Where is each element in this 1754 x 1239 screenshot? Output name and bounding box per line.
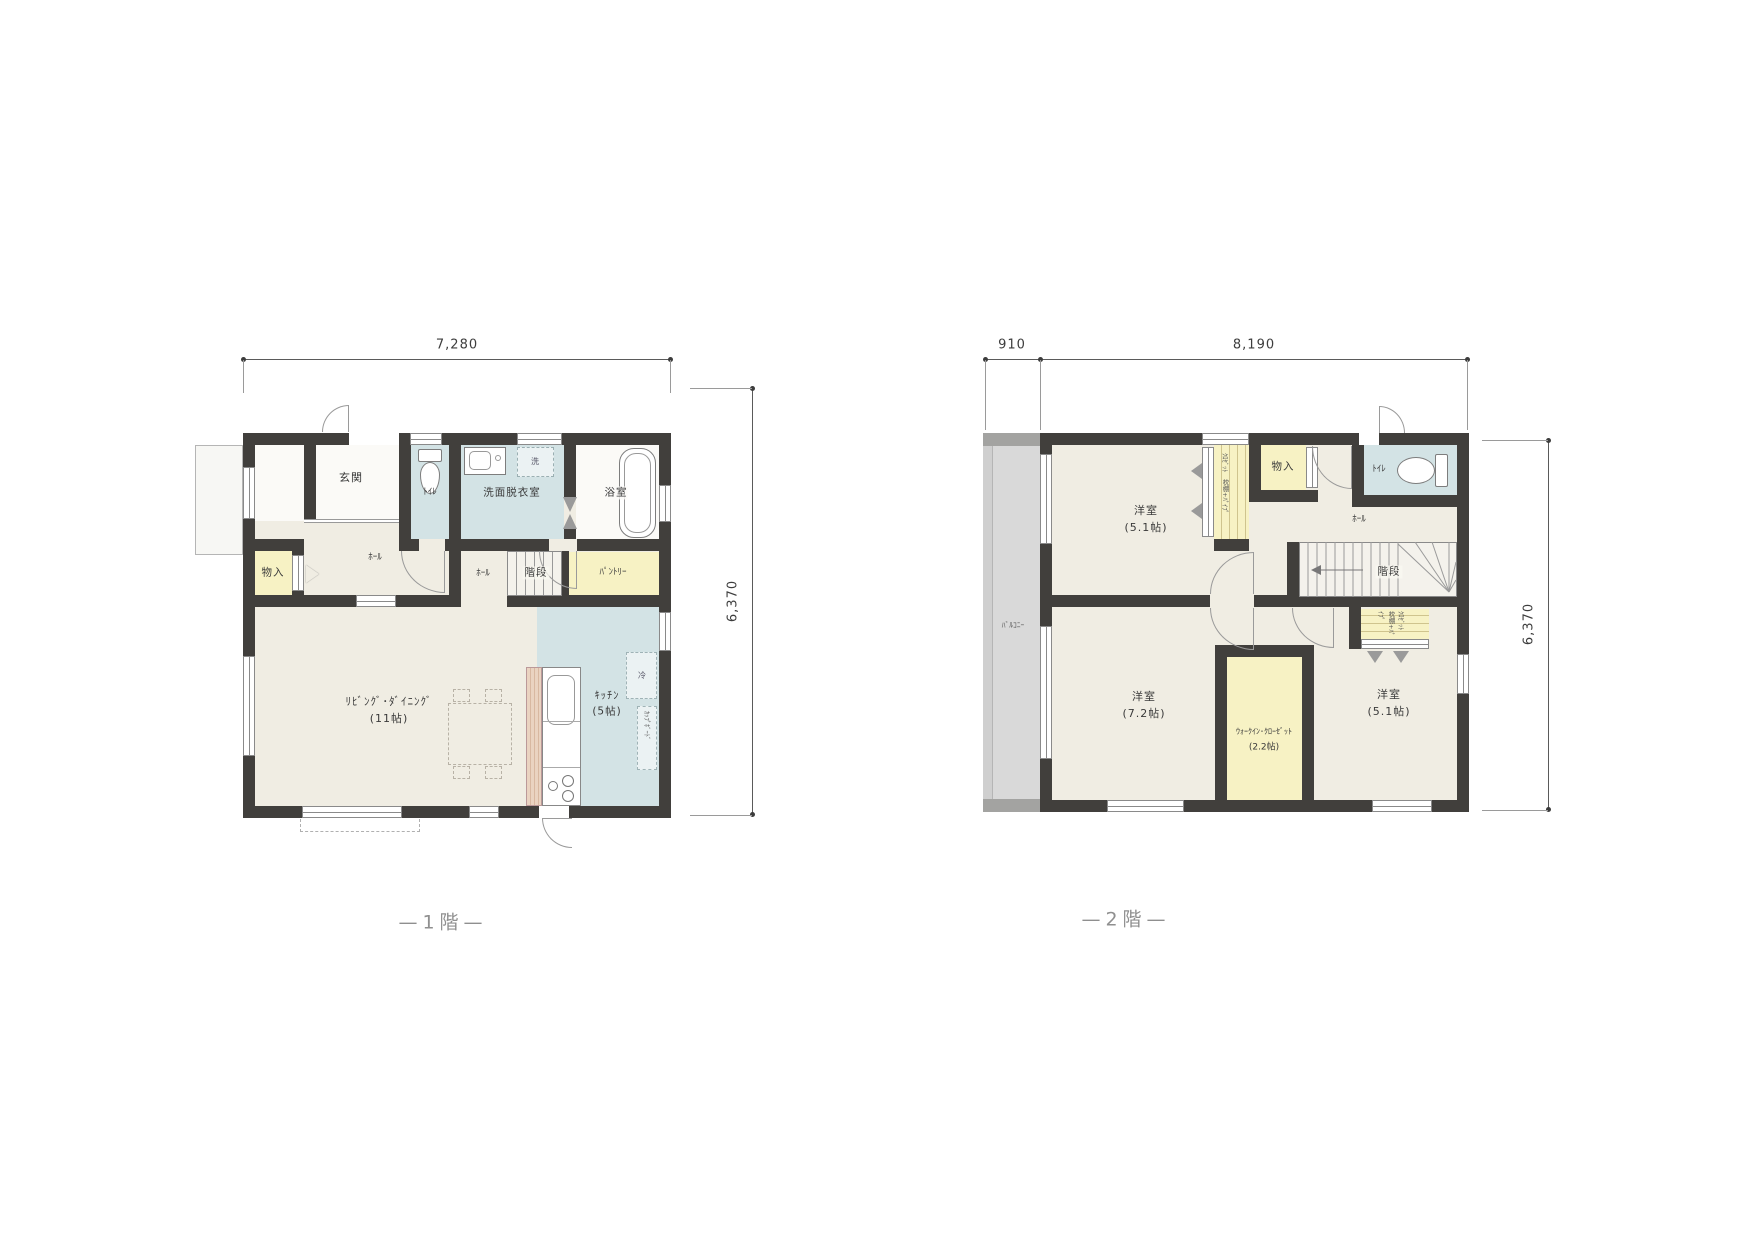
wall (564, 529, 576, 539)
toilet-tank-icon (1435, 454, 1448, 487)
folding-door-icon (563, 497, 577, 512)
wic-size-label: (2.2帖) (1249, 742, 1279, 753)
closet-front (1202, 447, 1214, 537)
dimension-balcony-floor2: 910 (998, 338, 1026, 353)
entrance-door-arc (322, 405, 349, 432)
dimension-line (1548, 440, 1549, 810)
toilet-label: ﾄｲﾚ (423, 487, 437, 498)
storage-label: 物入 (262, 566, 285, 579)
wall (255, 539, 304, 551)
room-genkan (255, 445, 399, 521)
bifold-door-icon (306, 565, 319, 583)
counter-divider (543, 767, 580, 768)
storage-front (292, 555, 304, 591)
genkan-step (304, 519, 399, 523)
window (517, 433, 562, 445)
dimension-line (243, 359, 671, 360)
wall (304, 445, 316, 519)
stairs2-label: 階段 (1376, 565, 1403, 578)
bifold-door-icon (1191, 463, 1202, 479)
wic-label: ｳｫｰｸｲﾝ･ｸﾛｰｾﾞｯﾄ (1236, 727, 1292, 737)
bedroom-c-size-label: (5.1帖) (1367, 705, 1410, 719)
wall (399, 445, 411, 539)
living-label: ﾘﾋﾞﾝｸﾞ･ﾀﾞｲﾆﾝｸﾞ (346, 695, 433, 709)
wall (255, 595, 356, 607)
floor2-main: ｸﾛｾﾞｯﾄ 枕棚+ﾊﾟｲﾌﾟ ｸﾛｾﾞｯﾄ 枕棚+ﾊﾟｲﾌﾟ (1040, 433, 1469, 812)
entrance-side-door-opening (243, 467, 255, 519)
entrance-porch (195, 445, 243, 555)
bifold-door-icon (1367, 651, 1383, 663)
wall (396, 595, 459, 607)
closet-a-line2: 枕棚+ﾊﾟｲﾌﾟ (1221, 479, 1229, 514)
extension-line (690, 815, 752, 816)
wall (1215, 645, 1227, 800)
wall (1349, 607, 1361, 649)
bedroom-b-size-label: (7.2帖) (1122, 707, 1165, 721)
bifold-door-icon (1393, 651, 1409, 663)
counter-divider (543, 721, 580, 722)
washbasin-bowl-icon (469, 451, 491, 470)
closet-b-line1: ｸﾛｾﾞｯﾄ (1397, 611, 1405, 631)
fridge-label: 冷 (638, 671, 646, 681)
wall (449, 445, 461, 607)
toilet-door-opening (1359, 433, 1379, 445)
dimension-height-floor2: 6,370 (1522, 603, 1537, 645)
floor2-plan: ﾊﾞﾙｺﾆｰ ｸﾛｾﾞｯ (983, 433, 1469, 812)
balcony-window (1040, 454, 1052, 544)
extension-line (1040, 360, 1041, 430)
door-arc (1210, 608, 1254, 650)
dimension-line (752, 388, 753, 815)
door-arc (1379, 406, 1405, 433)
entrance-door-opening (349, 433, 399, 445)
door-arc (1210, 552, 1254, 594)
wall (1215, 645, 1314, 657)
door-arc (401, 551, 445, 593)
closet-a-line1: ｸﾛｾﾞｯﾄ (1221, 453, 1229, 473)
extension-line (670, 360, 671, 393)
dimension-width-floor2: 8,190 (1233, 338, 1275, 353)
closet-front (1361, 639, 1429, 649)
extension-line (1482, 810, 1548, 811)
window (659, 485, 671, 522)
living-size-label: (11帖) (370, 712, 409, 726)
hall-label: ﾎｰﾙ (476, 568, 490, 579)
wall (1052, 595, 1210, 607)
bifold-door-icon (1191, 503, 1202, 519)
balcony-window (1040, 626, 1052, 759)
dining-table (448, 703, 512, 765)
balcony-label: ﾊﾞﾙｺﾆｰ (1002, 620, 1025, 629)
dining-chair (453, 766, 470, 779)
window (410, 433, 442, 445)
stove-burner-icon (548, 781, 558, 791)
stove-burner-icon (562, 790, 574, 802)
closet-b-line2: 枕棚+ﾊﾟｲﾌﾟ (1377, 611, 1395, 636)
washroom-label: 洗面脱衣室 (483, 486, 541, 499)
back-door-opening (539, 806, 569, 818)
wall (445, 539, 549, 551)
balcony-wall (983, 433, 993, 812)
kitchen-counter-wood (526, 667, 542, 806)
door-arc (1292, 608, 1334, 648)
kitchen-size-label: (5帖) (592, 705, 621, 718)
bath-label: 浴室 (605, 486, 628, 499)
stove-burner-icon (562, 775, 574, 787)
kitchen-label: ｷｯﾁﾝ (595, 689, 620, 702)
extension-line (1482, 440, 1548, 441)
storage2-label: 物入 (1272, 460, 1295, 473)
cupboard-label: ｶｯﾌﾟﾎﾞｰﾄﾞ (642, 711, 652, 740)
floor1-label: —1階— (398, 908, 487, 935)
bathtub-inner-icon (624, 453, 651, 533)
dimension-width-floor1: 7,280 (436, 338, 478, 353)
window (243, 656, 255, 756)
hall2-label: ﾎｰﾙ (1352, 514, 1366, 525)
floorplan-canvas: 7,280 6,370 (0, 0, 1754, 1239)
wall (1249, 490, 1318, 502)
wall (1302, 657, 1314, 800)
dining-chair (453, 689, 470, 702)
wall (1352, 495, 1457, 507)
closet-b-label: ｸﾛｾﾞｯﾄ 枕棚+ﾊﾟｲﾌﾟ (1376, 611, 1406, 639)
extension-line (985, 360, 986, 430)
bedroom-a-label: 洋室 (1134, 504, 1158, 518)
stairs-label: 階段 (523, 566, 550, 579)
closet-a-label: ｸﾛｾﾞｯﾄ 枕棚+ﾊﾟｲﾌﾟ (1220, 453, 1230, 537)
wall (1287, 542, 1299, 607)
pantry-label: ﾊﾟﾝﾄﾘｰ (599, 567, 626, 578)
bedroom-c-label: 洋室 (1377, 688, 1401, 702)
balcony-parapet (983, 799, 1040, 812)
dining-chair (485, 689, 502, 702)
extension-line (243, 360, 244, 393)
wall (577, 539, 659, 551)
dimension-height-floor1: 6,370 (726, 580, 741, 622)
sliding-door (356, 595, 396, 607)
window (1107, 800, 1184, 812)
hall-label: ﾎｰﾙ (368, 552, 382, 563)
toilet-tank-icon (418, 449, 442, 462)
floor1-plan: 洗 冷 ｶｯﾌﾟﾎﾞｰﾄﾞ (243, 433, 671, 818)
kitchen-sink-icon (547, 675, 575, 725)
dining-chair (485, 766, 502, 779)
toilet-bowl-icon (1397, 457, 1435, 484)
bedroom-a-size-label: (5.1帖) (1124, 521, 1167, 535)
wall (507, 595, 659, 607)
folding-door-icon (563, 514, 577, 529)
wall (399, 539, 419, 551)
washer-label: 洗 (531, 457, 539, 467)
window (1457, 654, 1469, 694)
window (1202, 433, 1249, 445)
dimension-line (985, 359, 1468, 360)
window (659, 612, 671, 651)
genkan-label: 玄関 (339, 471, 363, 485)
extension-line (690, 388, 752, 389)
extension-line (1467, 360, 1468, 430)
window (302, 806, 402, 818)
wall (564, 445, 576, 497)
door-arc (542, 818, 572, 848)
door-arc (1312, 446, 1352, 489)
balcony-parapet (983, 433, 1040, 446)
window (1372, 800, 1432, 812)
floor2-label: —2階— (1081, 905, 1170, 932)
window (469, 806, 499, 818)
terrace-outline (300, 819, 420, 832)
bedroom-b-label: 洋室 (1132, 690, 1156, 704)
toilet2-label: ﾄｲﾚ (1372, 464, 1386, 475)
wall (1214, 539, 1249, 551)
faucet-icon (495, 455, 501, 461)
